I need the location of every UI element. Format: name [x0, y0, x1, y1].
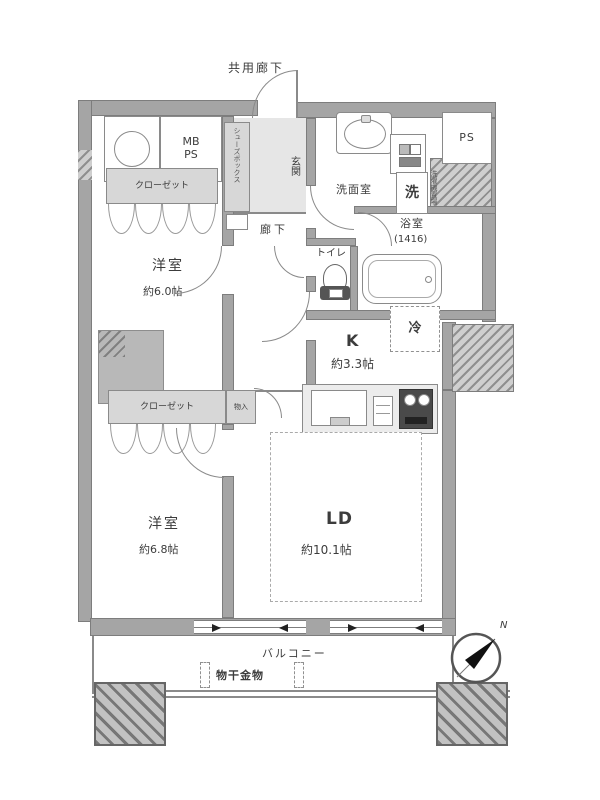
bedroom2-door-arc [176, 428, 224, 478]
laundry-label: 洗 [405, 185, 419, 201]
closet-front-folding-door [108, 204, 216, 234]
toilet-icon [320, 264, 350, 306]
closet-front: クローゼット [106, 168, 218, 204]
toilet-door-arc [274, 246, 304, 278]
window-sliding-right [330, 620, 442, 634]
pipe-space-box: PS [442, 112, 492, 164]
mb-ps-label: MB PS [182, 136, 199, 161]
wall-top-left [90, 100, 258, 116]
storage-label: 物入 [234, 403, 248, 411]
washbasin-tap-icon [361, 115, 371, 123]
entrance-label: 玄関 [288, 156, 300, 176]
shoe-cabinet-label: シューズボックス [233, 127, 241, 183]
kitchen-sink-icon [311, 390, 367, 426]
closet-back: クローゼット [108, 390, 226, 424]
wall-hall-east-a [306, 118, 316, 186]
compass-icon [448, 630, 504, 686]
laundry-machine-box: 洗 [396, 172, 428, 214]
laundry-hardware-post-left [200, 662, 210, 688]
pillar-bottom-right [436, 682, 508, 746]
shoe-cabinet: シューズボックス [224, 122, 250, 212]
washbasin-bowl-icon [344, 119, 386, 149]
kitchen-size: 約3.3帖 [331, 358, 374, 372]
washroom-door-arc [310, 186, 354, 230]
bedroom2-size: 約6.8帖 [139, 544, 179, 557]
wall-bedroom2-east [222, 476, 234, 618]
bathroom-size: (1416) [394, 234, 427, 246]
water-heater-icon [399, 144, 410, 155]
kitchen-cabinet-icon [373, 396, 393, 426]
closet-front-label: クローゼット [135, 181, 189, 191]
refrigerator-box: 冷 [390, 306, 440, 352]
meter-circle-icon [114, 131, 150, 167]
kitchen-name: K [346, 332, 359, 350]
balcony-label: バルコニー [262, 648, 327, 661]
hatch-block-under-ps [430, 158, 492, 208]
ld-name: LD [326, 510, 353, 530]
wall-hall-east-c [306, 276, 316, 292]
entrance-door-leaf [296, 70, 298, 118]
washbasin [336, 112, 392, 154]
compass-north-label: N [500, 620, 507, 632]
laundry-place-label: 洗濯機置場 [430, 170, 438, 205]
wall-bedroom1-east-lower [222, 294, 234, 392]
kitchen-counter [302, 384, 438, 434]
hall-ld-door-arc [262, 292, 310, 342]
laundry-hardware-post-right [294, 662, 304, 688]
common-corridor-label: 共用廊下 [228, 62, 284, 76]
wall-toilet-bath-divider [350, 246, 358, 312]
wall-toilet-north [306, 238, 356, 246]
laundry-hardware-label: 物干金物 [216, 670, 264, 683]
closet-back-label: クローゼット [140, 402, 194, 412]
refrigerator-label: 冷 [408, 322, 421, 337]
bedroom2-name: 洋室 [148, 516, 180, 532]
ps-label: PS [459, 132, 475, 145]
storage-door-arc [254, 388, 282, 418]
bathroom-door-arc [358, 212, 392, 246]
water-heater-box [390, 134, 426, 174]
bathtub-icon [362, 254, 442, 304]
storage-box: 物入 [226, 390, 256, 424]
pillar-bottom-left [94, 682, 166, 746]
hallway-label: 廊下 [260, 224, 288, 237]
toilet-label: トイレ [316, 248, 346, 260]
stove-icon [399, 389, 433, 429]
water-heater-icon-2 [410, 144, 421, 155]
floor-plan: 共用廊下 玄関 シューズボックス 廊下 MB PS クローゼット 洋室 [0, 0, 600, 800]
ld-size: 約10.1帖 [301, 544, 352, 558]
compass [448, 630, 504, 686]
bedroom1-door-arc [174, 246, 222, 294]
wall-right-lower [442, 390, 456, 622]
hatch-block-right [452, 324, 514, 392]
bathroom-name: 浴室 [400, 218, 424, 231]
hatch-ticks-left-wall [78, 150, 92, 180]
entrance-door-arc [252, 70, 298, 118]
water-heater-icon-3 [399, 157, 421, 167]
window-sliding-left [194, 620, 306, 634]
shoe-cabinet-sub-box [226, 214, 248, 230]
pillar-hatch-corner [99, 331, 125, 357]
